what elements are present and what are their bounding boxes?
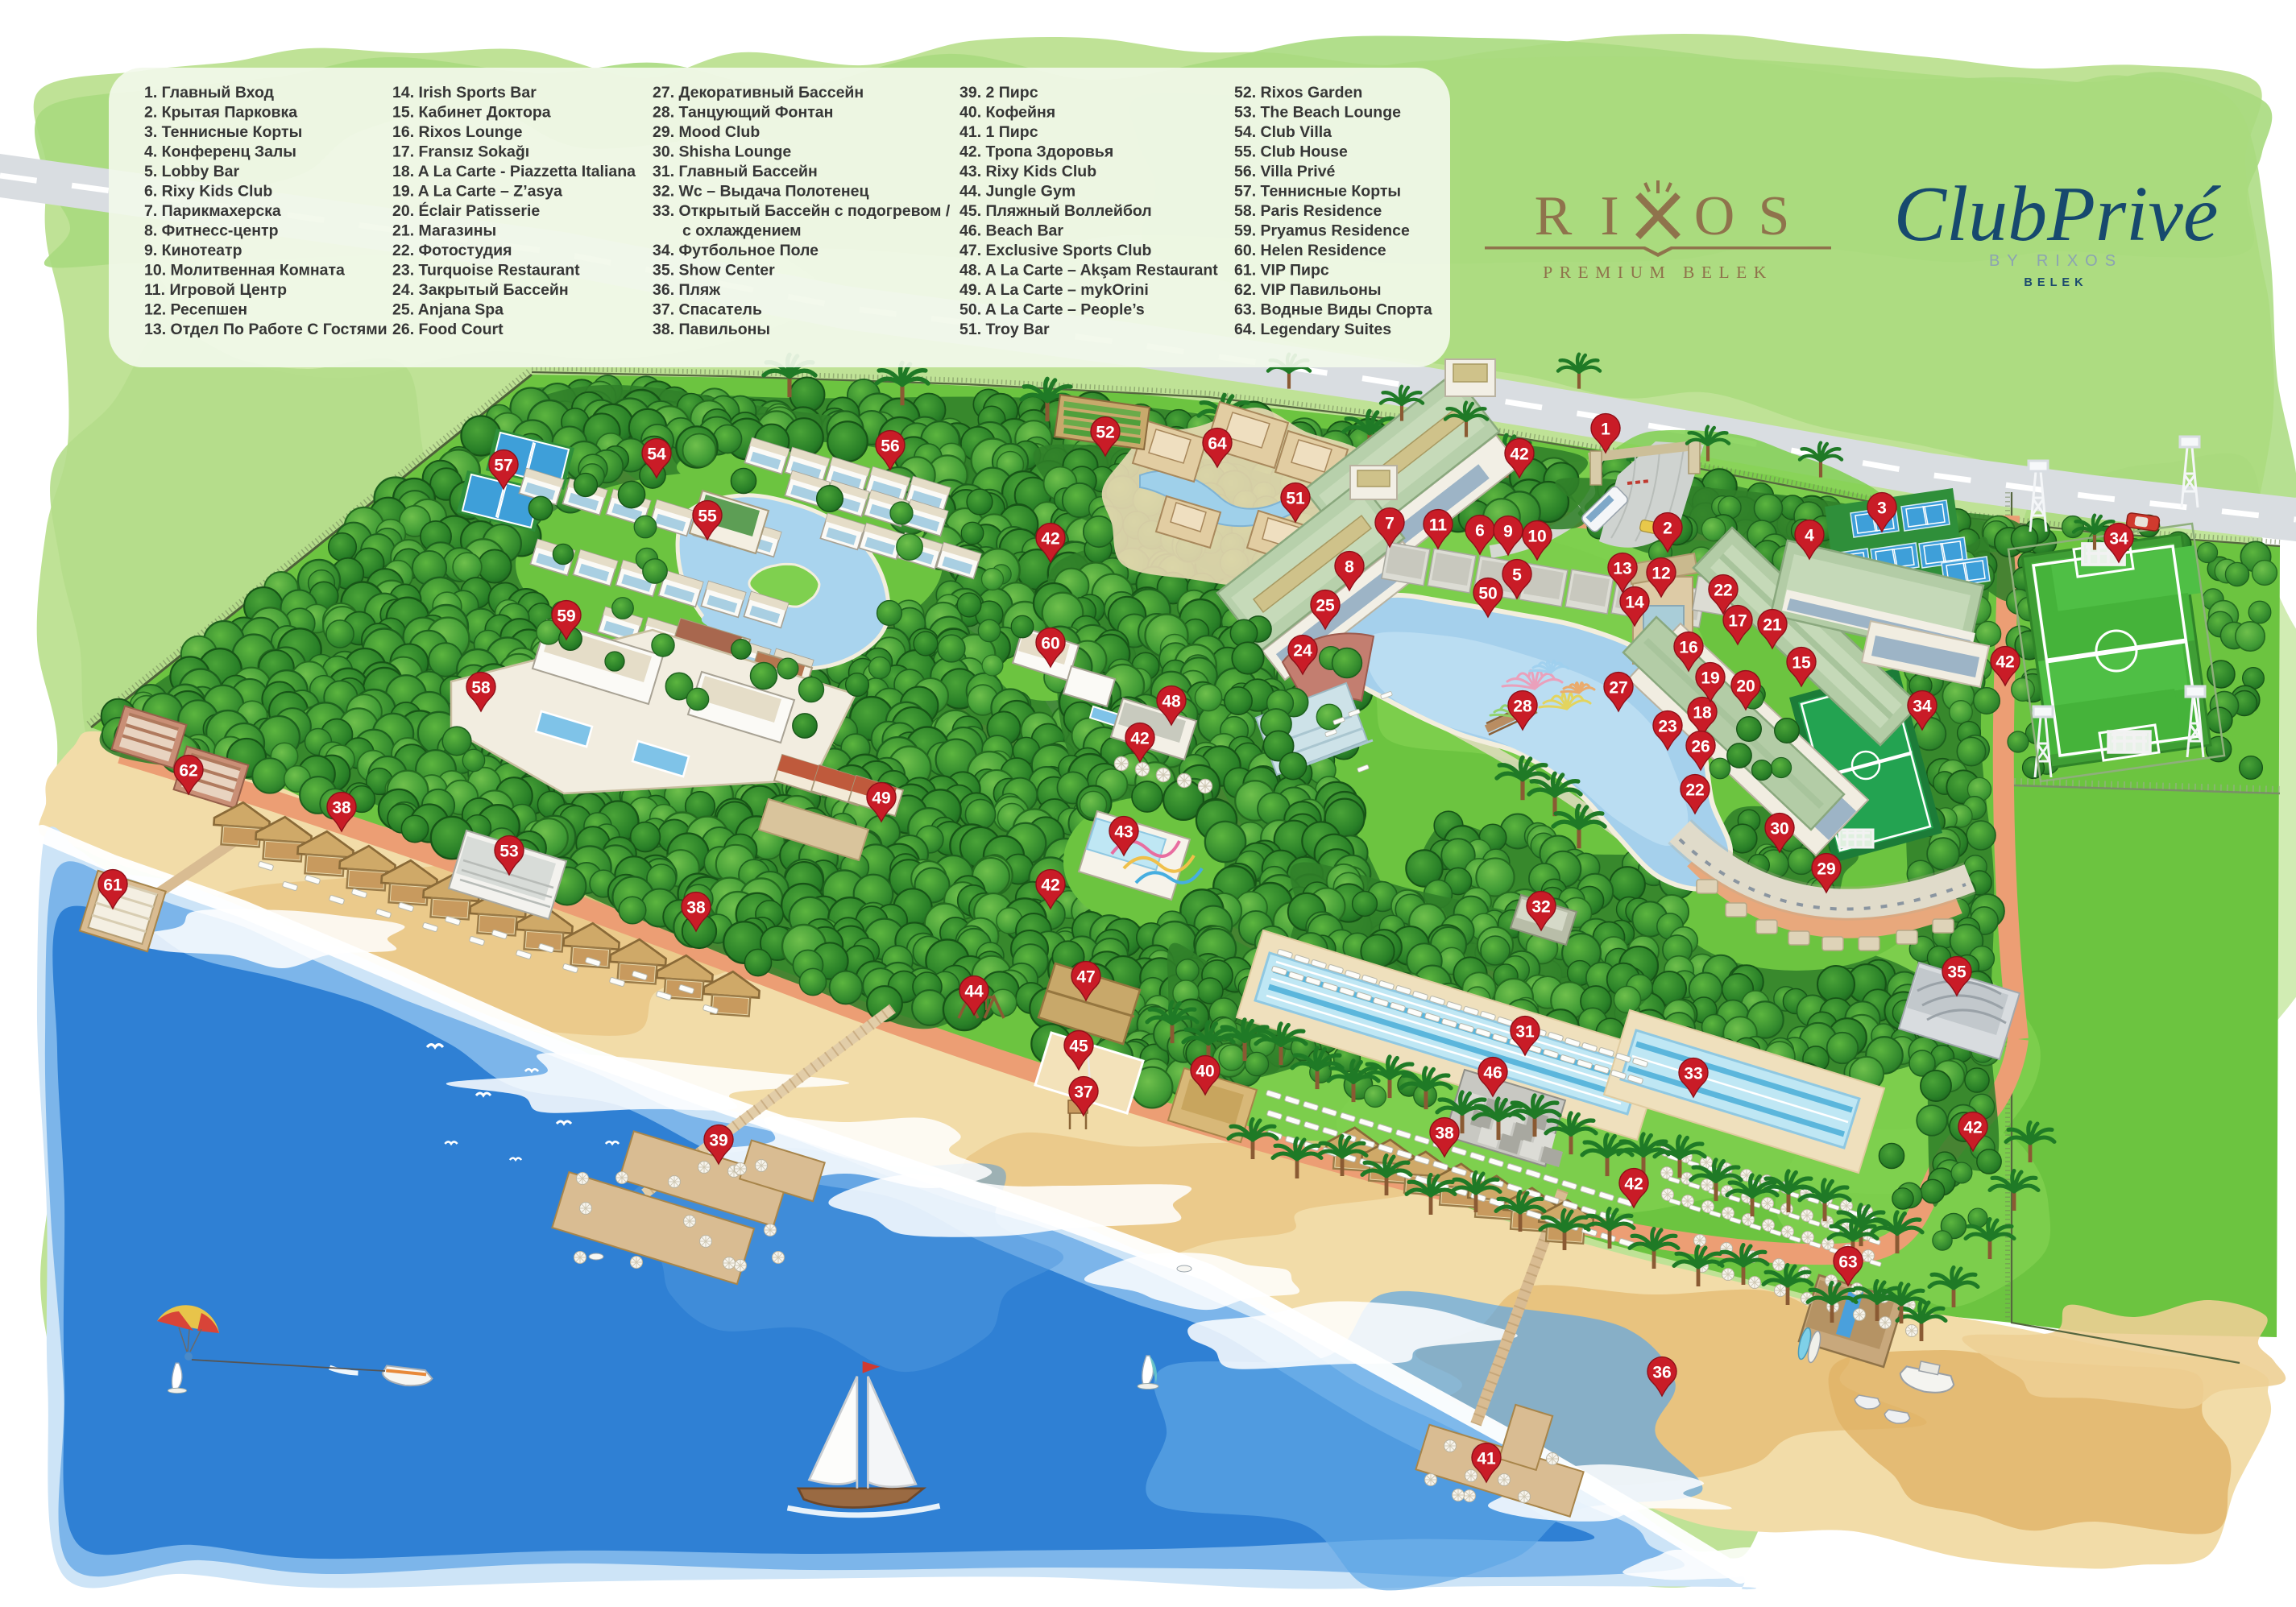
svg-text:36. Пляж: 36. Пляж <box>653 281 720 299</box>
svg-text:46: 46 <box>1483 1064 1502 1083</box>
svg-text:19: 19 <box>1701 669 1719 688</box>
svg-text:29. Mood Club: 29. Mood Club <box>653 123 760 141</box>
svg-text:42: 42 <box>1041 530 1059 549</box>
svg-text:48. A La Carte – Akşam Restaur: 48. A La Carte – Akşam Restaurant <box>959 262 1218 280</box>
svg-text:26. Food Court: 26. Food Court <box>392 321 504 338</box>
svg-text:38: 38 <box>1435 1124 1454 1143</box>
svg-text:52: 52 <box>1096 424 1114 442</box>
svg-text:61: 61 <box>103 876 122 895</box>
svg-text:46. Beach Bar: 46. Beach Bar <box>959 222 1063 240</box>
svg-text:21. Магазины: 21. Магазины <box>392 222 496 240</box>
svg-text:39. 2 Пирс: 39. 2 Пирс <box>959 84 1038 101</box>
svg-text:32: 32 <box>1531 898 1550 917</box>
svg-text:6. Rixy Kids Club: 6. Rixy Kids Club <box>144 183 272 201</box>
svg-text:9: 9 <box>1503 523 1513 541</box>
svg-text:24: 24 <box>1293 642 1312 661</box>
svg-text:23. Turquoise Restaurant: 23. Turquoise Restaurant <box>392 262 580 280</box>
svg-text:56. Villa Privé: 56. Villa Privé <box>1234 163 1336 180</box>
svg-text:42: 42 <box>1510 445 1528 464</box>
svg-text:34: 34 <box>1913 698 1932 716</box>
svg-text:R: R <box>1535 185 1573 247</box>
svg-text:40. Кофейня: 40. Кофейня <box>959 104 1055 122</box>
svg-text:PREMIUM BELEK: PREMIUM BELEK <box>1543 263 1773 282</box>
svg-text:26: 26 <box>1691 738 1710 756</box>
svg-text:44. Jungle Gym: 44. Jungle Gym <box>959 183 1075 201</box>
svg-text:22. Фотостудия: 22. Фотостудия <box>392 242 512 259</box>
svg-text:51: 51 <box>1286 490 1305 508</box>
svg-text:O: O <box>1694 185 1735 247</box>
svg-text:41: 41 <box>1477 1450 1496 1468</box>
svg-text:6: 6 <box>1475 522 1485 540</box>
svg-text:58: 58 <box>471 679 491 698</box>
svg-text:16: 16 <box>1679 639 1697 657</box>
svg-text:45: 45 <box>1069 1038 1088 1056</box>
svg-text:13. Отдел По Работе С Гостями: 13. Отдел По Работе С Гостями <box>144 321 388 338</box>
svg-text:30. Shisha Lounge: 30. Shisha Lounge <box>653 143 791 161</box>
svg-text:2. Крытая Парковка: 2. Крытая Парковка <box>144 104 297 122</box>
svg-text:38: 38 <box>686 899 706 917</box>
svg-text:29: 29 <box>1817 860 1835 879</box>
svg-text:25: 25 <box>1316 597 1335 615</box>
svg-text:62: 62 <box>179 762 197 781</box>
svg-text:39: 39 <box>709 1132 727 1150</box>
svg-text:3. Теннисные Корты: 3. Теннисные Корты <box>144 123 302 141</box>
svg-text:8. Фитнесс-центр: 8. Фитнесс-центр <box>144 222 279 240</box>
svg-text:10: 10 <box>1527 528 1546 546</box>
svg-text:59: 59 <box>557 607 575 626</box>
svg-text:53: 53 <box>499 843 518 861</box>
svg-text:3: 3 <box>1877 499 1887 518</box>
svg-text:31: 31 <box>1515 1023 1535 1042</box>
svg-text:49. A La Carte – mykOrini: 49. A La Carte – mykOrini <box>959 281 1149 299</box>
svg-text:8: 8 <box>1345 558 1354 577</box>
svg-text:15: 15 <box>1792 654 1811 673</box>
svg-text:37. Спасатель: 37. Спасатель <box>653 301 762 319</box>
svg-text:47. Exclusive Sports Club: 47. Exclusive Sports Club <box>959 242 1152 259</box>
svg-text:24. Закрытый Бассейн: 24. Закрытый Бассейн <box>392 281 569 299</box>
svg-text:30: 30 <box>1770 820 1788 839</box>
svg-text:55. Club House: 55. Club House <box>1234 143 1348 161</box>
svg-text:2: 2 <box>1663 520 1672 538</box>
svg-text:28: 28 <box>1513 698 1532 716</box>
svg-text:9. Кинотеатр: 9. Кинотеатр <box>144 242 242 259</box>
svg-text:43. Rixy Kids Club: 43. Rixy Kids Club <box>959 163 1096 180</box>
svg-text:BELEK: BELEK <box>2024 276 2087 289</box>
svg-text:50. A La Carte – People’s: 50. A La Carte – People’s <box>959 301 1145 319</box>
svg-text:S: S <box>1759 185 1790 247</box>
svg-text:49: 49 <box>872 789 890 808</box>
svg-text:34. Футбольное Поле: 34. Футбольное Поле <box>653 242 819 259</box>
svg-text:51. Troy Bar: 51. Troy Bar <box>959 321 1050 338</box>
svg-text:37: 37 <box>1074 1083 1092 1102</box>
svg-text:4. Конференц Залы: 4. Конференц Залы <box>144 143 296 161</box>
svg-text:50: 50 <box>1478 585 1497 603</box>
svg-text:I: I <box>1600 185 1618 247</box>
svg-text:28. Танцующий Фонтан: 28. Танцующий Фонтан <box>653 104 833 122</box>
svg-text:38: 38 <box>332 799 351 818</box>
svg-text:16. Rixos Lounge: 16. Rixos Lounge <box>392 123 523 141</box>
svg-text:7: 7 <box>1385 515 1395 533</box>
svg-text:15. Кабинет Доктора: 15. Кабинет Доктора <box>392 104 551 122</box>
svg-text:42: 42 <box>1041 876 1059 895</box>
svg-text:11. Игровой Центр: 11. Игровой Центр <box>144 281 287 299</box>
svg-text:19. A La Carte – Z’asya: 19. A La Carte – Z’asya <box>392 183 562 201</box>
svg-text:60. Helen Residence: 60. Helen Residence <box>1234 242 1386 259</box>
svg-text:48: 48 <box>1162 693 1181 711</box>
svg-text:1. Главный Вход: 1. Главный Вход <box>144 84 275 101</box>
svg-text:12: 12 <box>1652 565 1670 583</box>
svg-text:27. Декоративный Бассейн: 27. Декоративный Бассейн <box>653 84 864 101</box>
svg-text:25. Anjana Spa: 25. Anjana Spa <box>392 301 504 319</box>
svg-text:23: 23 <box>1658 718 1676 736</box>
svg-text:22: 22 <box>1714 582 1732 600</box>
svg-text:11: 11 <box>1429 516 1448 535</box>
svg-text:21: 21 <box>1763 616 1782 635</box>
svg-text:34: 34 <box>2109 530 2128 549</box>
svg-text:18. A La Carte - Piazzetta Ita: 18. A La Carte - Piazzetta Italiana <box>392 163 636 180</box>
svg-text:20: 20 <box>1736 677 1755 696</box>
svg-text:42: 42 <box>1963 1119 1982 1137</box>
svg-text:59. Pryamus Residence: 59. Pryamus Residence <box>1234 222 1410 240</box>
svg-text:32. Wc – Выдача Полотенец: 32. Wc – Выдача Полотенец <box>653 183 869 201</box>
svg-text:63. Водные Виды Спорта: 63. Водные Виды Спорта <box>1234 301 1432 319</box>
svg-text:12. Ресепшен: 12. Ресепшен <box>144 301 247 319</box>
svg-text:20. Éclair Patisserie: 20. Éclair Patisserie <box>392 201 540 220</box>
svg-text:60: 60 <box>1041 635 1059 653</box>
svg-text:47: 47 <box>1076 968 1095 987</box>
svg-text:4: 4 <box>1805 527 1814 545</box>
svg-text:42: 42 <box>1624 1175 1643 1194</box>
svg-text:5: 5 <box>1512 566 1522 585</box>
svg-text:7. Парикмахерска: 7. Парикмахерска <box>144 202 281 220</box>
svg-text:55: 55 <box>698 507 717 526</box>
svg-text:22: 22 <box>1685 781 1704 800</box>
svg-text:38. Павильоны: 38. Павильоны <box>653 321 770 338</box>
svg-text:45. Пляжный Воллейбол: 45. Пляжный Воллейбол <box>959 202 1152 220</box>
svg-text:64. Legendary Suites: 64. Legendary Suites <box>1234 321 1391 338</box>
svg-text:ClubPrivé: ClubPrivé <box>1894 171 2222 258</box>
svg-text:53. The Beach Lounge: 53. The Beach Lounge <box>1234 104 1401 122</box>
svg-text:62. VIP Павильоны: 62. VIP Павильоны <box>1234 281 1382 299</box>
svg-text:31. Главный Бассейн: 31. Главный Бассейн <box>653 163 818 180</box>
svg-text:63: 63 <box>1838 1253 1857 1272</box>
svg-text:44: 44 <box>964 983 984 1001</box>
svg-text:64: 64 <box>1208 435 1227 454</box>
svg-text:18: 18 <box>1693 704 1712 723</box>
svg-text:43: 43 <box>1114 823 1133 842</box>
svg-text:58. Paris Residence: 58. Paris Residence <box>1234 202 1382 220</box>
svg-text:57: 57 <box>494 457 512 475</box>
svg-text:41. 1 Пирс: 41. 1 Пирс <box>959 123 1038 141</box>
svg-text:1: 1 <box>1601 420 1610 439</box>
svg-text:35: 35 <box>1947 963 1967 982</box>
svg-text:35. Show Center: 35. Show Center <box>653 262 775 280</box>
svg-text:BY RIXOS: BY RIXOS <box>1989 252 2123 270</box>
svg-text:52. Rixos Garden: 52. Rixos Garden <box>1234 84 1362 101</box>
svg-text:33: 33 <box>1684 1065 1702 1083</box>
svg-text:10. Молитвенная Комната: 10. Молитвенная Комната <box>144 262 345 280</box>
svg-text:54: 54 <box>647 445 666 464</box>
svg-text:61. VIP Пирс: 61. VIP Пирс <box>1234 262 1329 280</box>
svg-text:13: 13 <box>1613 560 1631 578</box>
svg-text:56: 56 <box>881 437 899 456</box>
svg-text:14. Irish Sports Bar: 14. Irish Sports Bar <box>392 84 537 101</box>
svg-text:42: 42 <box>1996 653 2014 672</box>
svg-text:36: 36 <box>1652 1364 1671 1382</box>
svg-text:42. Тропа Здоровья: 42. Тропа Здоровья <box>959 143 1113 161</box>
svg-text:27: 27 <box>1609 679 1627 698</box>
svg-text:57. Теннисные Корты: 57. Теннисные Корты <box>1234 183 1401 201</box>
svg-text:33. Открытый Бассейн с подогре: 33. Открытый Бассейн с подогревом / <box>653 202 951 220</box>
svg-text:40: 40 <box>1196 1062 1214 1081</box>
svg-text:14: 14 <box>1625 594 1644 612</box>
svg-text:17: 17 <box>1728 612 1747 631</box>
svg-text:42: 42 <box>1130 730 1149 748</box>
svg-text:с охлаждением: с охлаждением <box>682 222 802 240</box>
svg-text:5. Lobby Bar: 5. Lobby Bar <box>144 163 240 180</box>
svg-text:54. Club Villa: 54. Club Villa <box>1234 123 1332 141</box>
svg-text:17. Fransız Sokağı: 17. Fransız Sokağı <box>392 143 529 161</box>
